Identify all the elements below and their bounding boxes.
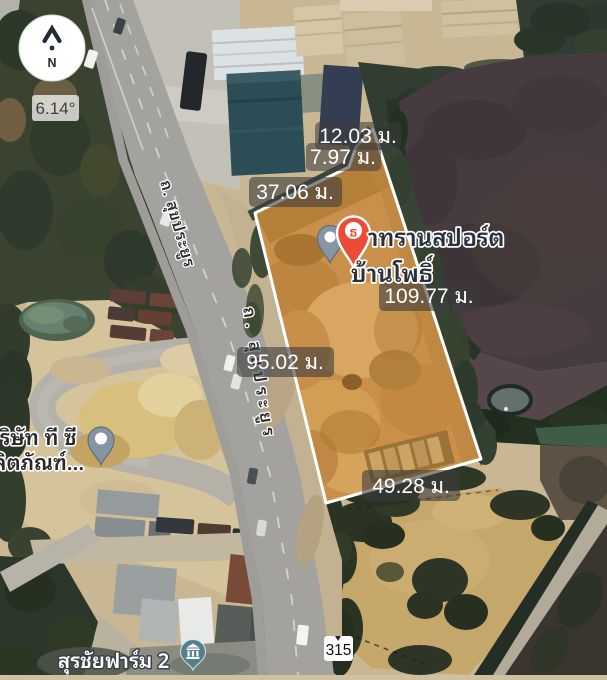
svg-text:49.28 ม.: 49.28 ม.: [372, 475, 450, 498]
svg-text:6.14°: 6.14°: [36, 99, 76, 118]
svg-text:าทรานสปอร์ต: าทรานสปอร์ต: [367, 217, 504, 255]
svg-text:7.97 ม.: 7.97 ม.: [310, 146, 376, 169]
svg-text:N: N: [47, 56, 56, 70]
svg-text:ลิตภัณฑ์...: ลิตภัณฑ์...: [0, 445, 84, 478]
svg-text:บ้านโพธิ์: บ้านโพธิ์: [351, 253, 433, 291]
svg-text:95.02 ม.: 95.02 ม.: [246, 351, 324, 374]
svg-text:315: 315: [326, 642, 352, 659]
svg-text:ธ: ธ: [350, 221, 358, 242]
svg-text:37.06 ม.: 37.06 ม.: [256, 181, 334, 204]
svg-text:สุรชัยฟาร์ม 2: สุรชัยฟาร์ม 2: [58, 643, 169, 675]
